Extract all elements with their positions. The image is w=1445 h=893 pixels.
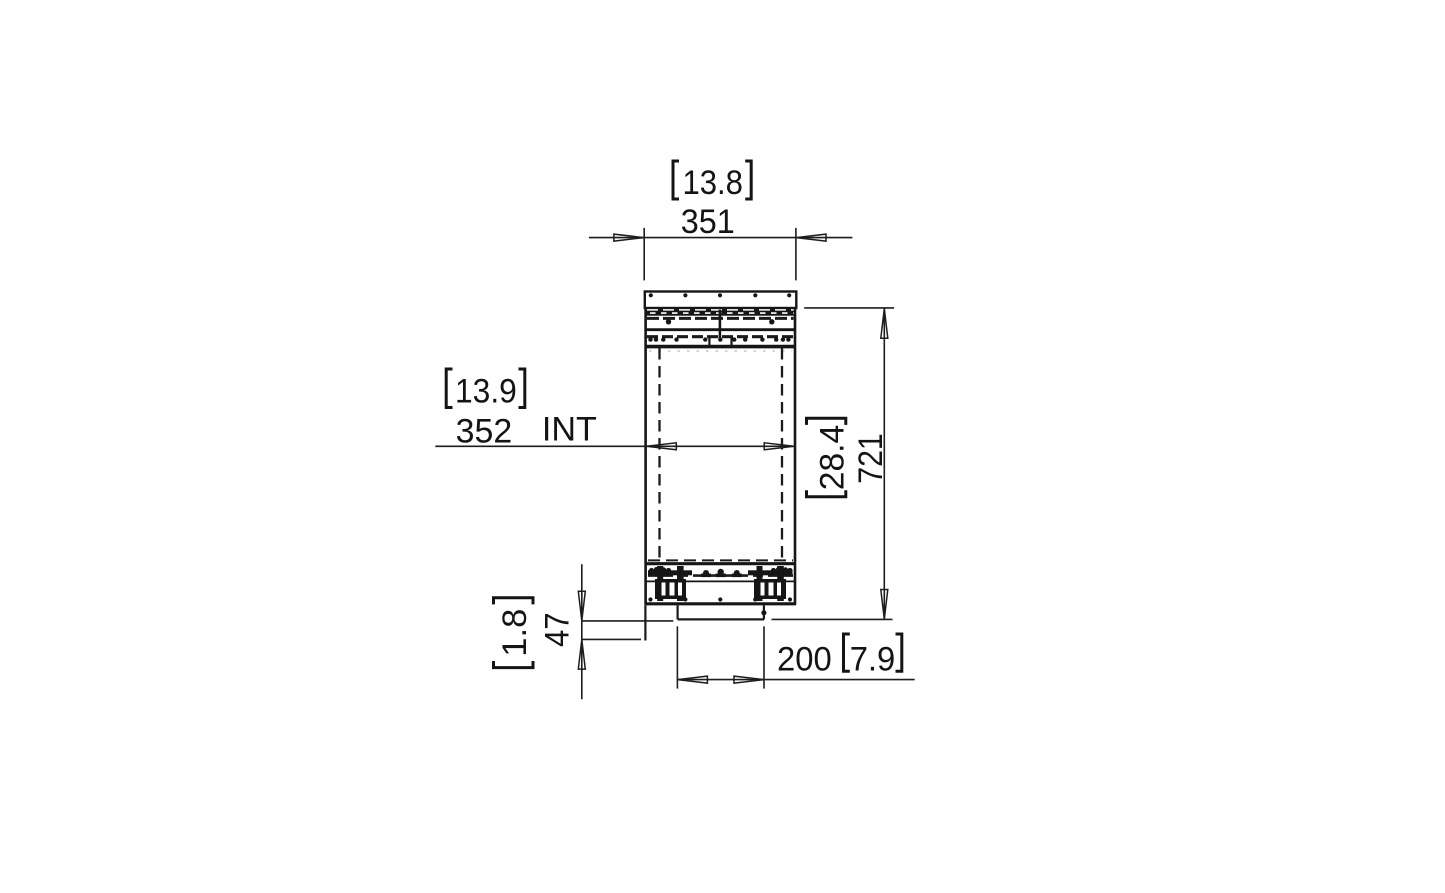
svg-text:1.8: 1.8	[496, 609, 534, 657]
svg-text:352: 352	[456, 412, 513, 450]
svg-text:7.9: 7.9	[850, 641, 896, 679]
svg-text:351: 351	[681, 203, 735, 241]
svg-text:200: 200	[777, 641, 832, 679]
svg-text:INT: INT	[542, 410, 597, 448]
svg-text:721: 721	[852, 433, 890, 484]
svg-text:13.8: 13.8	[682, 164, 743, 202]
svg-text:13.9: 13.9	[455, 372, 517, 410]
svg-text:47: 47	[539, 613, 577, 648]
svg-text:28.4: 28.4	[814, 425, 852, 491]
